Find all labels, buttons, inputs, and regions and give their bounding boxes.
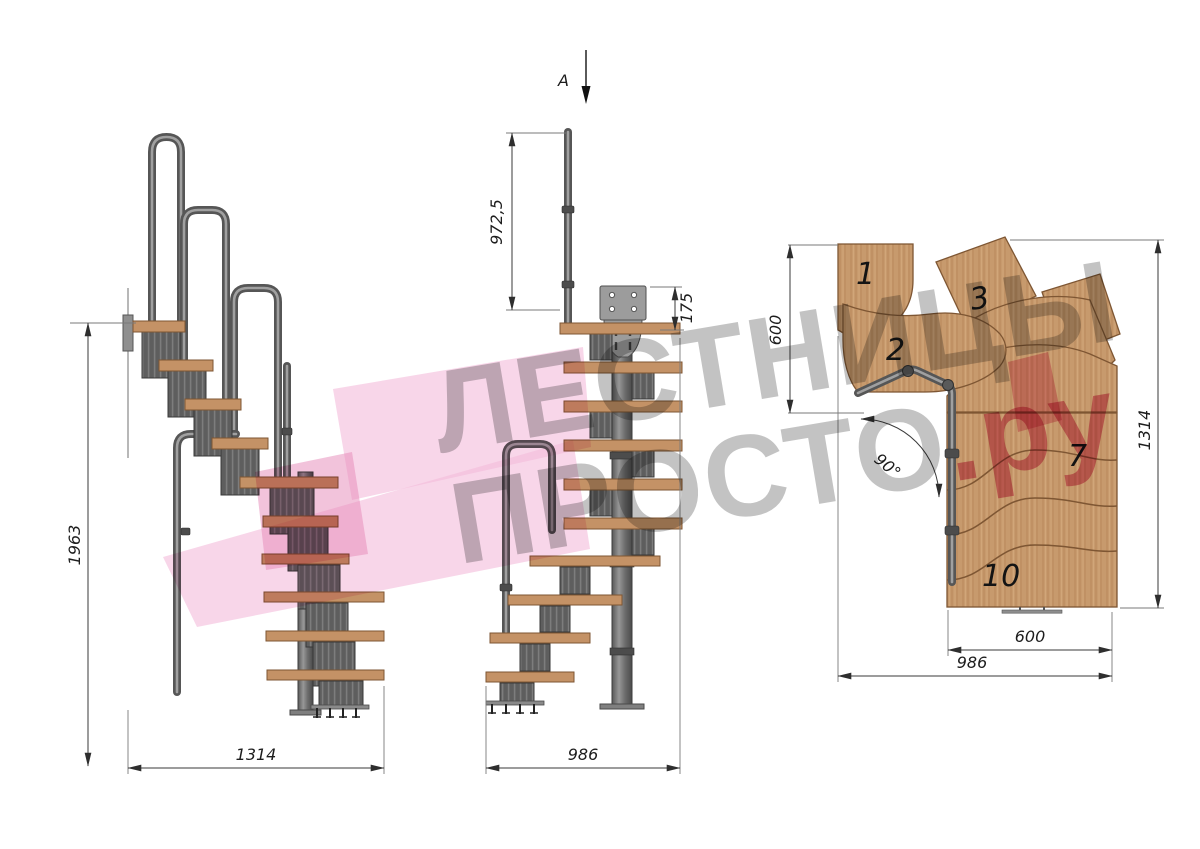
staircase-drawing: 1963 1314 A bbox=[0, 0, 1200, 849]
front-elevation-view: A bbox=[486, 50, 696, 774]
plan-handrail bbox=[858, 366, 959, 583]
dimension-label-front-width: 986 bbox=[568, 745, 599, 764]
section-marker: A bbox=[557, 50, 591, 104]
dimension-label-plate: 175 bbox=[677, 293, 696, 324]
dimension-label-width: 1314 bbox=[236, 745, 277, 764]
step-number-10: 10 bbox=[982, 559, 1020, 594]
step-number-7: 7 bbox=[1068, 439, 1087, 474]
wall-bracket bbox=[123, 315, 133, 351]
plan-view: 1 2 3 7 10 90° 600 1314 bbox=[766, 237, 1164, 682]
angle-label: 90° bbox=[871, 449, 905, 482]
side-elevation-view: 1963 1314 bbox=[65, 137, 384, 774]
plan-floor-bracket bbox=[1002, 607, 1062, 613]
section-arrow-head bbox=[582, 86, 591, 104]
dimension-label-upper-run: 600 bbox=[766, 315, 785, 346]
dimension-label-total-width: 986 bbox=[957, 653, 988, 672]
dimension-label-height: 1963 bbox=[65, 525, 84, 566]
dimension-label-lower-run: 600 bbox=[1015, 627, 1046, 646]
front-post-base bbox=[600, 704, 644, 709]
drawing-canvas: 1963 1314 A bbox=[0, 0, 1200, 849]
dimension-label-total-depth: 1314 bbox=[1135, 410, 1154, 451]
step-number-2: 2 bbox=[886, 333, 905, 368]
dimension-label-rail-height: 972,5 bbox=[487, 199, 506, 245]
angle-arc bbox=[861, 419, 939, 497]
turn-angle: 90° bbox=[861, 419, 939, 497]
section-label: A bbox=[557, 71, 569, 90]
step-number-1: 1 bbox=[856, 257, 875, 292]
plan-lower-run bbox=[947, 413, 1117, 607]
front-rail-post bbox=[562, 132, 574, 330]
